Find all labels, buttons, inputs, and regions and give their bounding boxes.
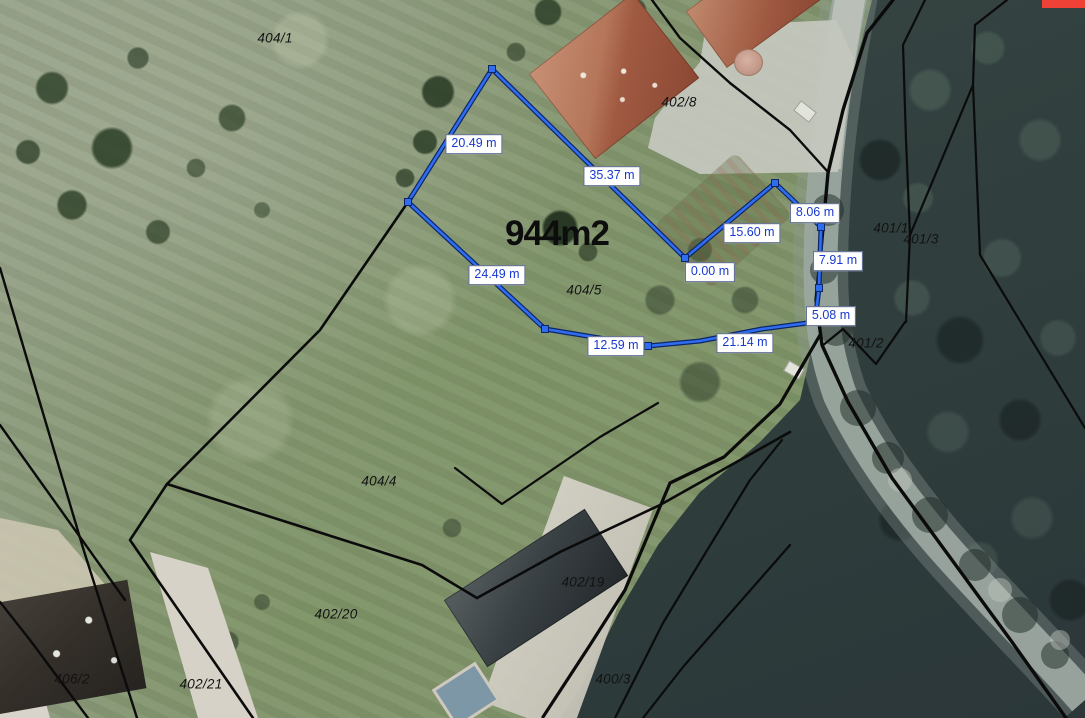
- partial-toolbar-button[interactable]: [1042, 0, 1085, 8]
- parcel-label: 401/3: [903, 232, 938, 247]
- parcel-label: 404/1: [257, 31, 292, 46]
- parcel-label: 402/21: [179, 677, 222, 692]
- parcel-label: 404/4: [361, 474, 396, 489]
- measurement-label[interactable]: 8.06 m: [790, 203, 840, 223]
- measurement-label[interactable]: 5.08 m: [806, 306, 856, 326]
- parcel-label: 404/5: [566, 283, 601, 298]
- parcel-label: 402/20: [314, 607, 357, 622]
- labels-layer: 404/1402/8401/1401/3401/2404/5404/4402/1…: [0, 0, 1085, 718]
- parcel-label: 401/2: [848, 336, 883, 351]
- parcel-label: 402/19: [561, 575, 604, 590]
- measurement-label[interactable]: 20.49 m: [445, 134, 502, 154]
- measurement-label[interactable]: 21.14 m: [716, 333, 773, 353]
- parcel-label: 406/2: [54, 672, 89, 687]
- measurement-label[interactable]: 7.91 m: [813, 251, 863, 271]
- measurement-label[interactable]: 24.49 m: [468, 265, 525, 285]
- measured-area-label: 944m2: [505, 214, 609, 254]
- parcel-label: 400/3: [595, 672, 630, 687]
- parcel-label: 402/8: [661, 95, 696, 110]
- measurement-label[interactable]: 0.00 m: [685, 262, 735, 282]
- measurement-label[interactable]: 12.59 m: [587, 336, 644, 356]
- measurement-label[interactable]: 35.37 m: [583, 166, 640, 186]
- map-canvas[interactable]: 404/1402/8401/1401/3401/2404/5404/4402/1…: [0, 0, 1085, 718]
- measurement-label[interactable]: 15.60 m: [723, 223, 780, 243]
